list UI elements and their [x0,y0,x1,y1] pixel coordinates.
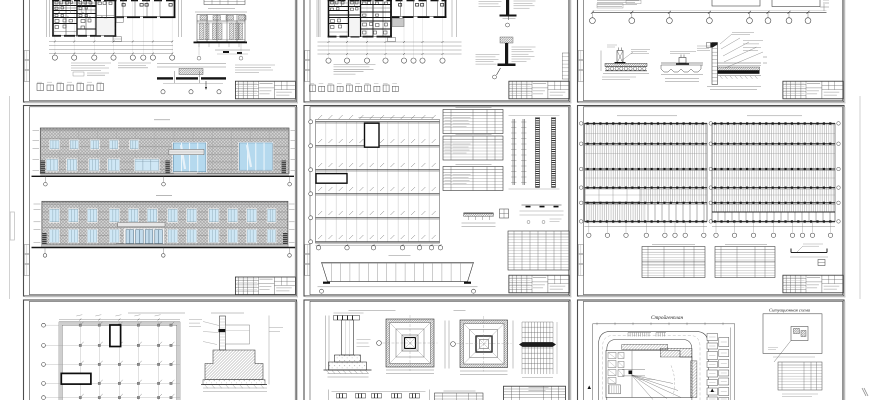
svg-text:Стройгенплан: Стройгенплан [651,314,683,321]
svg-text:Ситуационная схема: Ситуационная схема [769,308,811,313]
